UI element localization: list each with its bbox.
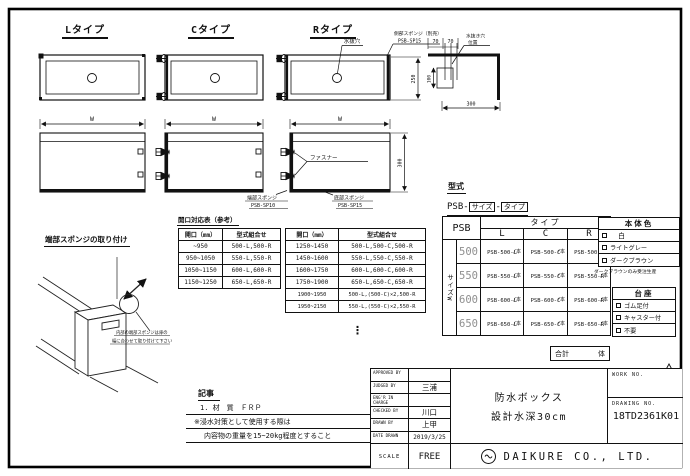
table-row: 1150~1250 650-L,650-R: [179, 277, 281, 289]
table-row: 950~1050 550-L,550-R: [179, 253, 281, 265]
work-no-cell: WORK NO.: [608, 369, 683, 398]
base-option-none: 不要: [613, 324, 675, 336]
checkbox-icon: [616, 315, 621, 320]
front-view-c: [156, 133, 263, 192]
daikure-logo-icon: [481, 449, 496, 464]
c-type-title: Cタイプ: [188, 21, 234, 39]
height-dim-text: 300: [398, 158, 404, 167]
table-row: 1950~2150 550-L,(550-C)×2,550-R: [286, 301, 426, 313]
judged-by-label: JUDGED BY: [371, 382, 409, 395]
base-option-caster: キャスター付: [613, 312, 675, 324]
col-combo: 型式組合せ: [339, 229, 426, 241]
model-combo: 550-L,(550-C)×2,550-R: [339, 301, 426, 313]
w-dim-1: W: [90, 115, 94, 123]
opening-table-a: 開口（mm） 型式組合せ ~950 500-L,500-R 950~1050 5…: [178, 228, 281, 289]
checkbox-icon: [616, 303, 621, 308]
checked-by-label: CHECKED BY: [371, 407, 409, 420]
engineer-in-charge-value: [409, 394, 451, 407]
qty-unit: /本: [600, 320, 608, 327]
bottom-sponge-part-no: PSB-SP15: [338, 203, 362, 209]
date-drawn-label: DATE DRAWN: [371, 432, 409, 445]
model-combo: 550-L,550-C,550-R: [339, 253, 426, 265]
opening-table-b: 開口（mm） 型式組合せ 1250~1450 500-L,500-C,500-R…: [285, 228, 426, 313]
table-row: 550 PSB-550-L/本 PSB-550-C/本 PSB-550-R/本: [443, 264, 611, 288]
scale-label: SCALE: [371, 444, 409, 469]
model-cell: PSB-500-C/本: [524, 240, 568, 264]
color-option-dark-brown: ダークブラウン: [599, 254, 679, 266]
model-combo: 650-L,650-C,650-R: [339, 277, 426, 289]
qty-unit: /本: [513, 248, 521, 255]
drawing-sheet: 水抜穴 側部スポンジ（別売） PSB-SP15 250: [0, 0, 690, 476]
width-dimensions: W W W: [40, 115, 390, 129]
notes-title: 記事: [198, 388, 220, 401]
qty-unit: /本: [557, 320, 565, 327]
body-color-title: 本体色: [599, 218, 679, 230]
height-dimension: 300: [391, 133, 408, 192]
end-sponge-part-no: PSB-SP10: [251, 203, 275, 209]
drawing-no-cell: DRAWING NO. 18TD2361K01: [608, 398, 683, 444]
approved-by-label: APPROVED BY: [371, 369, 409, 382]
checkbox-icon: [616, 328, 621, 333]
drawing-no-value: 18TD2361K01: [608, 407, 683, 422]
table-row: 1050~1150 600-L,600-R: [179, 265, 281, 277]
company-cell: DAIKURE CO., LTD.: [451, 444, 683, 469]
option-label: ゴム足付: [624, 301, 649, 310]
opening-range: 1050~1150: [179, 265, 223, 277]
model-combo: 500-L,(500-C)×2,500-R: [339, 289, 426, 301]
model-combo: 600-L,600-C,600-R: [339, 265, 426, 277]
fastener-callout: ファスナー: [295, 153, 368, 175]
bottom-sponge-callout: 底部スポンジ PSB-SP15: [322, 191, 373, 209]
opening-range: 1450~1600: [286, 253, 339, 265]
note-line: ※浸水対策として使用する際は: [186, 415, 372, 429]
psb-corner: PSB: [443, 217, 481, 240]
w-dim-2: W: [212, 115, 216, 123]
size-value: 550: [457, 264, 481, 288]
opening-range: 1900~1950: [286, 289, 339, 301]
size-value: 600: [457, 288, 481, 312]
top-view-l: [39, 54, 146, 101]
end-sponge-label: 端部スポンジ: [247, 195, 277, 202]
qty-unit: /本: [557, 248, 565, 255]
approved-by-value: [409, 369, 451, 382]
notes-block: 記事 1. 材 質 ＦＲＰ ※浸水対策として使用する際は 内容物の重量を15~2…: [186, 388, 372, 443]
opening-range: 1750~1900: [286, 277, 339, 289]
judged-by-value: 三浦: [409, 382, 451, 395]
model-cell: PSB-650-C/本: [524, 312, 568, 336]
top-view-c: [156, 55, 263, 101]
detail-dim-100: 100: [427, 75, 433, 83]
option-label: ダークブラウン: [610, 256, 653, 265]
install-note-2: 幅に合わせて取り付けて下さい: [112, 338, 172, 345]
option-label: キャスター付: [624, 313, 661, 322]
drawing-title-line2: 設計水深30cm: [491, 408, 567, 423]
opening-range: ~950: [179, 241, 223, 253]
engineer-in-charge-label: ENG'R IN CHARGE: [371, 394, 409, 407]
model-combo: 500-L,500-R: [223, 241, 281, 253]
color-option-light-gray: ライトグレー: [599, 242, 679, 254]
qty-unit: /本: [557, 272, 565, 279]
model-combo: 500-L,500-C,500-R: [339, 241, 426, 253]
top-view-r: [276, 55, 390, 101]
total-label: 合計: [555, 349, 569, 359]
opening-table-title: 開口対応表（参考）: [177, 214, 239, 226]
drawing-no-label: DRAWING NO.: [608, 398, 683, 407]
detail-dim-300: 300: [466, 102, 475, 108]
color-option-white: 白: [599, 230, 679, 242]
detail-label-1: 水抜き穴: [466, 33, 485, 40]
model-cell: PSB-550-L/本: [481, 264, 524, 288]
order-table: PSB タイプ L C R サイズW 500 PSB-500-L/本 PSB-5…: [442, 216, 611, 336]
model-cell: PSB-500-L/本: [481, 240, 524, 264]
col-l: L: [481, 229, 524, 240]
total-unit: 体: [598, 349, 605, 359]
model-section-title: 型式: [447, 181, 466, 194]
checked-by-value: 川口: [409, 407, 451, 420]
end-sponge-callout: 端部スポンジ PSB-SP10: [245, 191, 288, 210]
work-no-label: WORK NO.: [612, 372, 644, 378]
drawn-by-label: DRAWN BY: [371, 419, 409, 432]
sponge-install-drawing: 内部の端部スポンジは扉の 幅に合わせて取り付けて下さい: [36, 257, 172, 392]
size-value: 500: [457, 240, 481, 264]
model-cell: PSB-600-R/本: [568, 288, 611, 312]
model-cell: PSB-650-R/本: [568, 312, 611, 336]
qty-unit: /本: [557, 296, 565, 303]
table-header-row: PSB タイプ: [443, 217, 611, 229]
col-opening: 開口（mm）: [179, 229, 223, 241]
table-row: 1450~1600 550-L,550-C,550-R: [286, 253, 426, 265]
qty-unit: /本: [600, 296, 608, 303]
side-sponge-part-no: PSB-SP15: [398, 39, 421, 45]
model-combo: 600-L,600-R: [223, 265, 281, 277]
model-cell: PSB-550-C/本: [524, 264, 568, 288]
note-line: 内容物の重量を15~20kg程度とすること: [186, 429, 372, 443]
table-row: サイズW 500 PSB-500-L/本 PSB-500-C/本 PSB-500…: [443, 240, 611, 264]
drawn-by-value: 上甲: [409, 419, 451, 432]
model-combo: 650-L,650-R: [223, 277, 281, 289]
scale-value: FREE: [409, 444, 451, 469]
title-block: APPROVED BY JUDGED BY 三浦 ENG'R IN CHARGE…: [370, 368, 682, 468]
col-combo: 型式組合せ: [223, 229, 281, 241]
table-row: 1900~1950 500-L,(500-C)×2,500-R: [286, 289, 426, 301]
size-token-box: サイズ: [469, 202, 496, 212]
table-row: 1750~1900 650-L,650-C,650-R: [286, 277, 426, 289]
total-box: 合計 体: [550, 346, 610, 361]
base-title: 台座: [613, 288, 675, 300]
col-opening: 開口（mm）: [286, 229, 339, 241]
sponge-install-title: 端部スポンジの取り付け: [44, 234, 130, 247]
model-combo: 550-L,550-R: [223, 253, 281, 265]
body-color-box: 本体色 白 ライトグレー ダークブラウン: [598, 217, 680, 267]
opening-range: 1950~2150: [286, 301, 339, 313]
table-header-row: 開口（mm） 型式組合せ: [179, 229, 281, 241]
model-number-format: PSB-サイズ-タイプ: [447, 194, 528, 216]
company-name: DAIKURE CO., LTD.: [504, 451, 654, 463]
front-view-r: [281, 133, 390, 192]
qty-unit: /本: [513, 296, 521, 303]
date-drawn-value: 2019/3/25: [409, 432, 451, 445]
fastener-label: ファスナー: [310, 155, 338, 162]
r-type-title: Rタイプ: [310, 21, 356, 39]
type-header: タイプ: [481, 217, 611, 229]
front-view-l: [40, 133, 145, 192]
bottom-sponge-label: 底部スポンジ: [334, 195, 364, 202]
model-prefix: PSB-: [447, 202, 469, 212]
option-label: ライトグレー: [610, 243, 647, 252]
drawing-title: 防水ボックス 設計水深30cm: [451, 369, 608, 444]
table-row: ~950 500-L,500-R: [179, 241, 281, 253]
model-cell: PSB-600-L/本: [481, 288, 524, 312]
l-type-title: Lタイプ: [62, 21, 108, 39]
install-note-1: 内部の端部スポンジは扉の: [116, 329, 168, 336]
qty-unit: /本: [513, 272, 521, 279]
size-value: 650: [457, 312, 481, 336]
col-c: C: [524, 229, 568, 240]
opening-range: 1600~1750: [286, 265, 339, 277]
table-row: 600 PSB-600-L/本 PSB-600-C/本 PSB-600-R/本: [443, 288, 611, 312]
drain-detail: 70 70 100 300 水抜き穴 位置: [427, 33, 501, 112]
table-header-row: 開口（mm） 型式組合せ: [286, 229, 426, 241]
side-sponge-label: 側部スポンジ（別売）: [394, 30, 442, 37]
option-label: 白: [618, 231, 625, 241]
table-row: 1600~1750 600-L,600-C,600-R: [286, 265, 426, 277]
table-row: 650 PSB-650-L/本 PSB-650-C/本 PSB-650-R/本: [443, 312, 611, 336]
body-color-note: ダークブラウンのみ受注生産: [594, 268, 656, 275]
checkbox-icon: [602, 245, 607, 250]
detail-label-2: 位置: [468, 39, 478, 46]
w-dim-3: W: [338, 115, 342, 123]
model-cell: PSB-650-L/本: [481, 312, 524, 336]
size-axis-label: サイズW: [443, 240, 457, 336]
depth-dimension: 250: [391, 57, 421, 100]
detail-dim-70b: 70: [447, 39, 453, 45]
option-label: 不要: [624, 326, 636, 335]
checkbox-icon: [602, 258, 607, 263]
opening-range: 1250~1450: [286, 241, 339, 253]
opening-range: 1150~1250: [179, 277, 223, 289]
opening-range: 950~1050: [179, 253, 223, 265]
depth-dim-text: 250: [411, 74, 417, 83]
checkbox-icon: [602, 233, 607, 238]
note-line: 1. 材 質 ＦＲＰ: [186, 401, 372, 415]
qty-unit: /本: [513, 320, 521, 327]
base-box: 台座 ゴム足付 キャスター付 不要: [612, 287, 676, 337]
model-cell: PSB-600-C/本: [524, 288, 568, 312]
type-token-box: タイプ: [501, 202, 528, 212]
drawing-title-line1: 防水ボックス: [495, 389, 564, 404]
base-option-rubber: ゴム足付: [613, 300, 675, 312]
table-continuation-ellipsis: ⋮: [352, 324, 363, 337]
detail-dim-70a: 70: [432, 39, 438, 45]
table-row: 1250~1450 500-L,500-C,500-R: [286, 241, 426, 253]
